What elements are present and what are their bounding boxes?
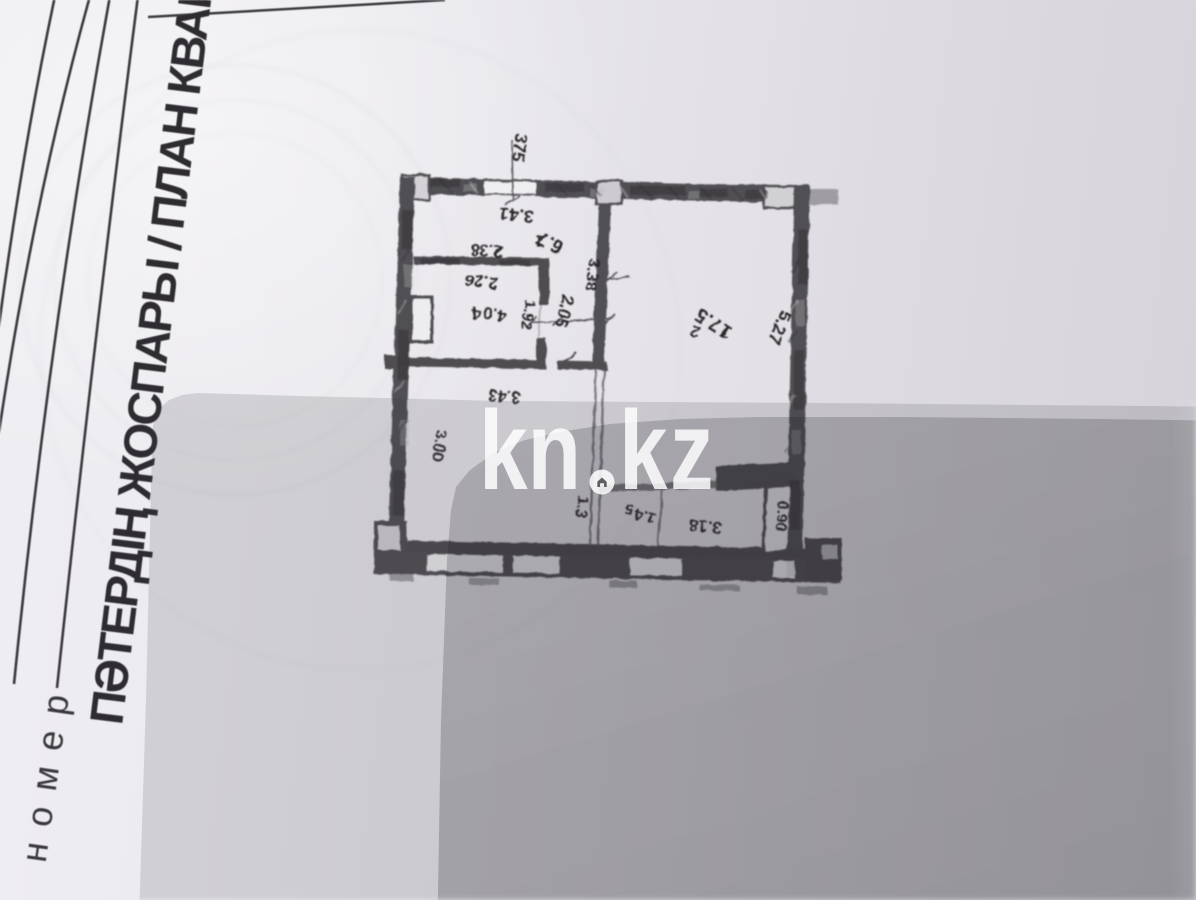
svg-text:kn: kn (479, 389, 581, 514)
svg-text:kz: kz (619, 389, 716, 514)
